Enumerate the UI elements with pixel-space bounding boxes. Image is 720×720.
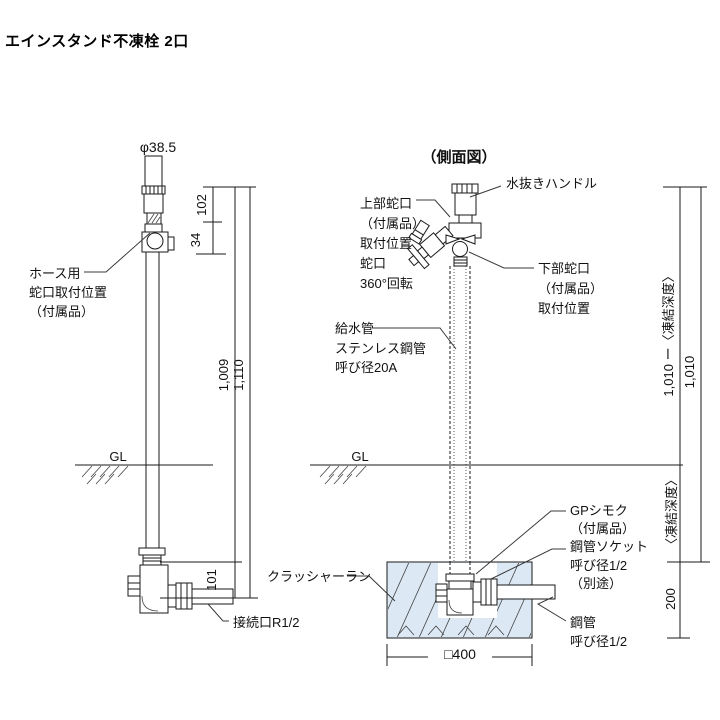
pipe-socket-label-1: 鋼管ソケット bbox=[570, 539, 648, 554]
dim-width: □400 bbox=[444, 646, 476, 662]
dim-34: 34 bbox=[188, 233, 203, 247]
dim-1110: 1,110 bbox=[231, 359, 246, 391]
upper-faucet-label-3: 取付位置 bbox=[360, 236, 412, 251]
upper-faucet-label-5: 360°回転 bbox=[360, 276, 413, 291]
pipe-socket-label-2: 呼び径1/2 bbox=[570, 558, 627, 573]
supply-pipe-label-3: 呼び径20A bbox=[335, 360, 397, 375]
drain-handle-label: 水抜きハンドル bbox=[506, 176, 597, 191]
ground-line-side bbox=[310, 465, 683, 484]
pipe-socket-label-3: （別途） bbox=[570, 576, 622, 591]
dim-total: 1,010 bbox=[682, 356, 697, 389]
lower-faucet-label-2: （付属品） bbox=[538, 281, 603, 296]
steel-pipe-label-2: 呼び径1/2 bbox=[570, 634, 627, 649]
hose-faucet-label-3: （付属品） bbox=[29, 304, 94, 319]
upper-faucet-label-2: （付属品） bbox=[360, 216, 425, 231]
hose-faucet-label-2: 蛇口取付位置 bbox=[29, 285, 107, 300]
hose-faucet-label-1: ホース用 bbox=[29, 266, 80, 281]
ground-line-front bbox=[75, 465, 213, 484]
dim-frost-depth: 〈凍結深度〉 bbox=[664, 473, 679, 551]
dim-102: 102 bbox=[194, 194, 209, 216]
dia-label: φ38.5 bbox=[140, 139, 177, 155]
front-standpipe bbox=[142, 156, 174, 548]
gl-label-front: GL bbox=[109, 449, 126, 464]
steel-pipe-label-1: 鋼管 bbox=[570, 615, 596, 630]
upper-faucet-label-4: 蛇口 bbox=[360, 256, 386, 271]
supply-pipe bbox=[450, 266, 470, 572]
front-dimension-lines bbox=[160, 187, 258, 598]
gp-shimoku-label-1: GPシモク bbox=[570, 503, 628, 518]
supply-pipe-label-1: 給水管 bbox=[335, 321, 374, 336]
dim-above-ground: 1,010 ー〈凍結深度〉 bbox=[661, 269, 676, 396]
dim-200: 200 bbox=[663, 588, 678, 610]
technical-diagram: φ38.5 ホース用 蛇口取付位置 （付属品） GL 接続口R1/2 102 3… bbox=[0, 0, 720, 720]
supply-pipe-label-2: ステンレス鋼管 bbox=[335, 341, 426, 356]
gl-label-side: GL bbox=[351, 449, 368, 464]
front-view: φ38.5 ホース用 蛇口取付位置 （付属品） GL 接続口R1/2 102 3… bbox=[29, 139, 299, 630]
dim-101: 101 bbox=[204, 569, 219, 591]
side-view-title: （側面図） bbox=[421, 148, 496, 166]
side-view: （側面図） 水抜きハンドル 上部蛇口 （付属品） 取付位置 蛇口 360°回転 … bbox=[267, 148, 710, 666]
lower-faucet-label-3: 取付位置 bbox=[538, 301, 590, 316]
connection-label: 接続口R1/2 bbox=[233, 615, 299, 630]
upper-faucet-label-1: 上部蛇口 bbox=[360, 196, 412, 211]
lower-faucet-label-1: 下部蛇口 bbox=[538, 261, 590, 276]
gp-shimoku-label-2: （付属品） bbox=[570, 521, 635, 536]
dim-1009: 1,009 bbox=[216, 359, 231, 392]
lower-faucet-mount bbox=[446, 235, 475, 266]
crusher-run-label: クラッシャーラン bbox=[267, 569, 371, 584]
side-standpipe-head bbox=[449, 184, 481, 238]
